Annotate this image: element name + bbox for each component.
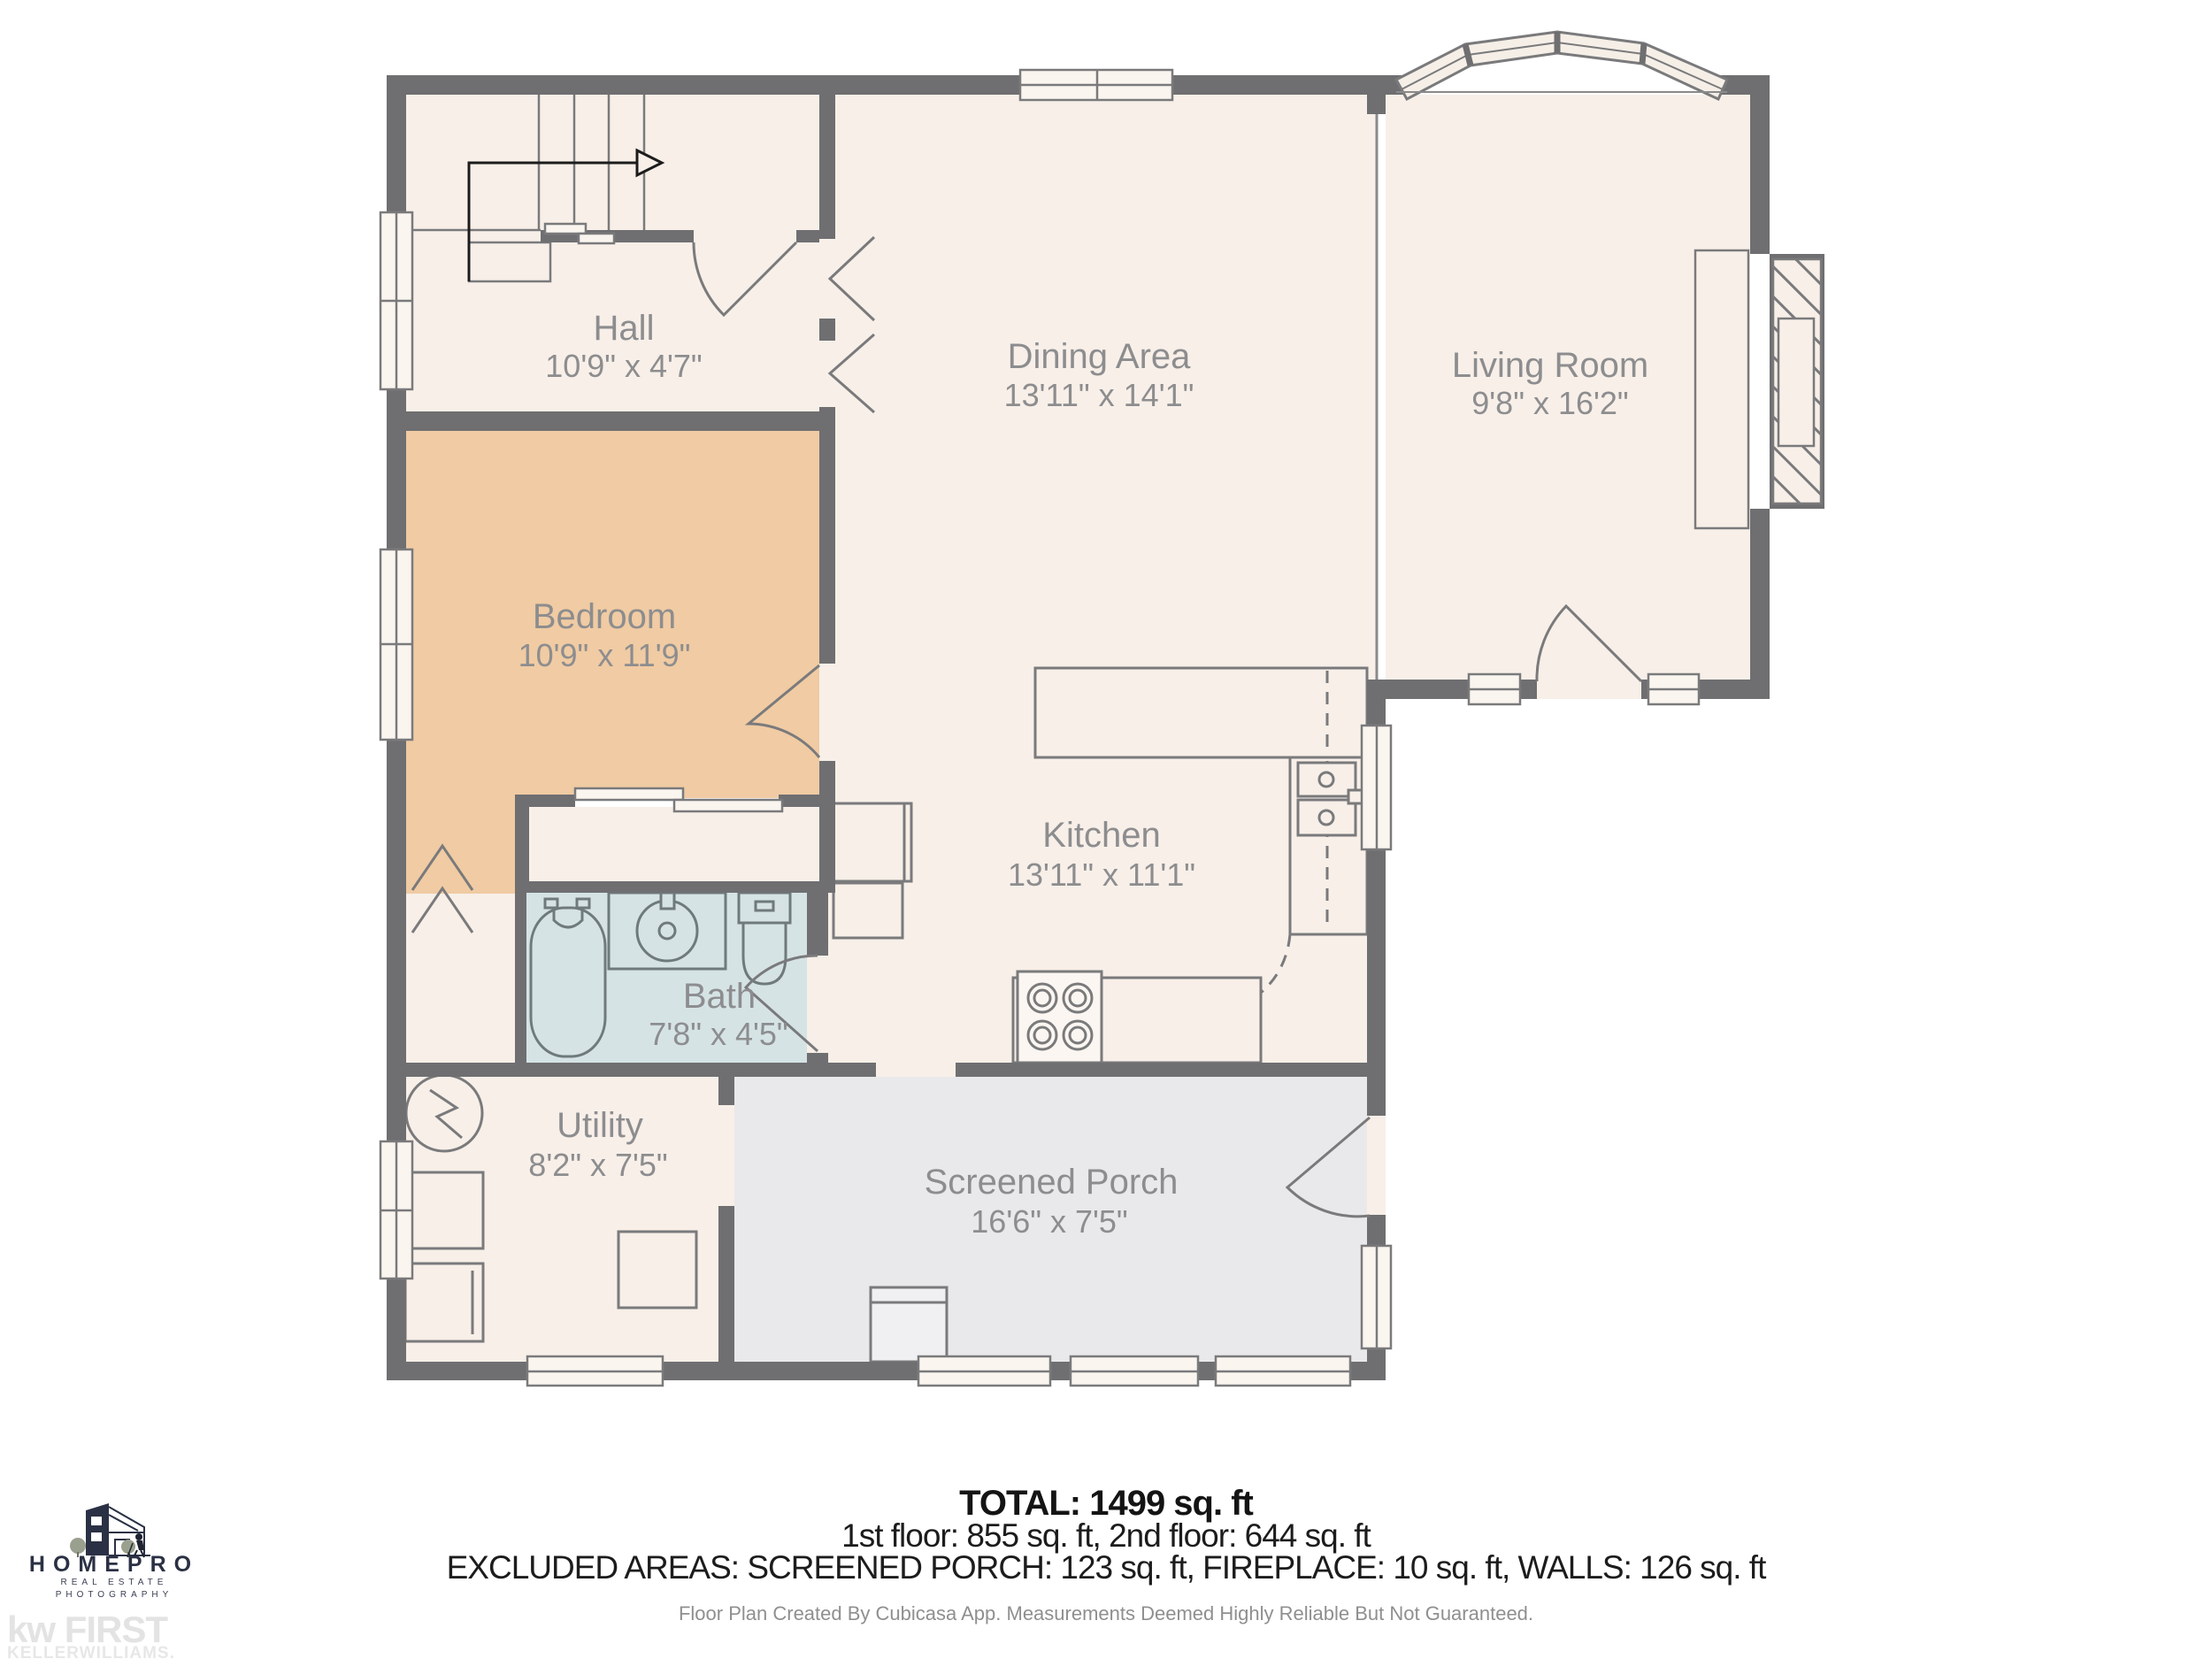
- porch-window-right: [1362, 1246, 1391, 1348]
- tub-handle-right: [577, 899, 589, 908]
- porch-bottom-window-1: [918, 1356, 1050, 1386]
- dining-window: [1020, 70, 1172, 100]
- washer: [405, 1172, 483, 1248]
- kitchen-window: [1362, 726, 1391, 849]
- living-dims: 9'8" x 16'2": [1471, 385, 1628, 421]
- closet-floor: [515, 807, 819, 887]
- bedroom-label: Bedroom: [533, 597, 676, 636]
- utility-dims: 8'2" x 7'5": [528, 1147, 667, 1183]
- stove: [1018, 972, 1102, 1063]
- toilet-flush: [756, 902, 773, 910]
- floor-areas-text: 1st floor: 855 sq. ft, 2nd floor: 644 sq…: [841, 1517, 1371, 1554]
- bath-label: Bath: [683, 977, 756, 1016]
- homepro-sub1: REAL ESTATE: [61, 1578, 168, 1587]
- kw-watermark: kw FIRST KELLERWILLIAMS.: [7, 1609, 175, 1659]
- utility-window: [380, 1141, 412, 1279]
- utility-bottom-window: [527, 1356, 663, 1386]
- bath-door-sill: [807, 956, 828, 1053]
- homepro-house-icon: [70, 1503, 150, 1557]
- living-window-right: [1648, 674, 1699, 704]
- kw-kellerwilliams-text: KELLERWILLIAMS.: [7, 1644, 175, 1659]
- bathtub: [531, 908, 605, 1056]
- homepro-sub2: PHOTOGRAPHY: [56, 1590, 173, 1600]
- living-window-left: [1469, 674, 1520, 704]
- bedroom-dims: 10'9" x 11'9": [518, 637, 691, 673]
- hall-opening-2: [819, 341, 835, 407]
- porch-cabinet: [871, 1287, 947, 1362]
- utility-door-sill: [718, 1105, 734, 1206]
- floorplan-page: Hall 10'9" x 4'7" Dining Area 13'11" x 1…: [0, 0, 2212, 1659]
- fireplace-firebox: [1778, 319, 1814, 446]
- hall-window: [380, 212, 412, 389]
- porch-door-sill: [1367, 1116, 1386, 1215]
- summary-block: TOTAL: 1499 sq. ft 1st floor: 855 sq. ft…: [447, 1484, 1767, 1624]
- homepro-logo: HOMEPRO REAL ESTATE PHOTOGRAPHY: [29, 1503, 199, 1600]
- bedroom-floor-extension: [406, 795, 515, 896]
- bedroom-window: [380, 549, 412, 740]
- kitchen-cabinet-upper: [833, 803, 911, 881]
- kitchen-cabinet-lower: [833, 883, 902, 938]
- fireplace-hearth: [1695, 250, 1748, 528]
- sink-drain-2: [1319, 810, 1333, 825]
- hall-dims: 10'9" x 4'7": [545, 348, 702, 384]
- stair-door-sill: [694, 230, 796, 242]
- homepro-name: HOMEPRO: [29, 1552, 199, 1577]
- fireplace: [1695, 250, 1821, 528]
- bath-faucet: [661, 893, 674, 909]
- dining-label: Dining Area: [1008, 337, 1192, 376]
- bedroom-door-sill: [819, 664, 835, 761]
- hall-opening-1: [819, 239, 835, 319]
- toilet-bowl: [743, 923, 786, 984]
- utility-appliance: [618, 1232, 696, 1308]
- tub-handle-left: [545, 899, 557, 908]
- excluded-areas-text: EXCLUDED AREAS: SCREENED PORCH: 123 sq. …: [447, 1549, 1767, 1586]
- utility-label: Utility: [557, 1106, 643, 1145]
- kitchen-counter-top: [1035, 668, 1367, 757]
- kitchen-label: Kitchen: [1042, 816, 1160, 855]
- porch-label: Screened Porch: [925, 1163, 1179, 1202]
- porch-dims: 16'6" x 7'5": [971, 1203, 1127, 1240]
- bay-window: [1396, 32, 1727, 99]
- disclaimer-text: Floor Plan Created By Cubicasa App. Meas…: [679, 1602, 1533, 1624]
- porch-bottom-window-2: [1071, 1356, 1198, 1386]
- porch-fixtures: [871, 1287, 947, 1362]
- porch-bottom-window-3: [1216, 1356, 1350, 1386]
- living-door-sill: [1537, 680, 1641, 699]
- hall-label: Hall: [594, 309, 655, 348]
- living-label: Living Room: [1452, 346, 1648, 385]
- dining-dims: 13'11" x 14'1": [1004, 377, 1194, 413]
- floorplan-canvas: Hall 10'9" x 4'7" Dining Area 13'11" x 1…: [0, 0, 2212, 1659]
- bath-dims: 7'8" x 4'5": [649, 1016, 787, 1052]
- sink-drain-1: [1319, 772, 1333, 787]
- kitchen-dims: 13'11" x 11'1": [1008, 856, 1195, 893]
- kitchen-porch-opening: [876, 1063, 956, 1077]
